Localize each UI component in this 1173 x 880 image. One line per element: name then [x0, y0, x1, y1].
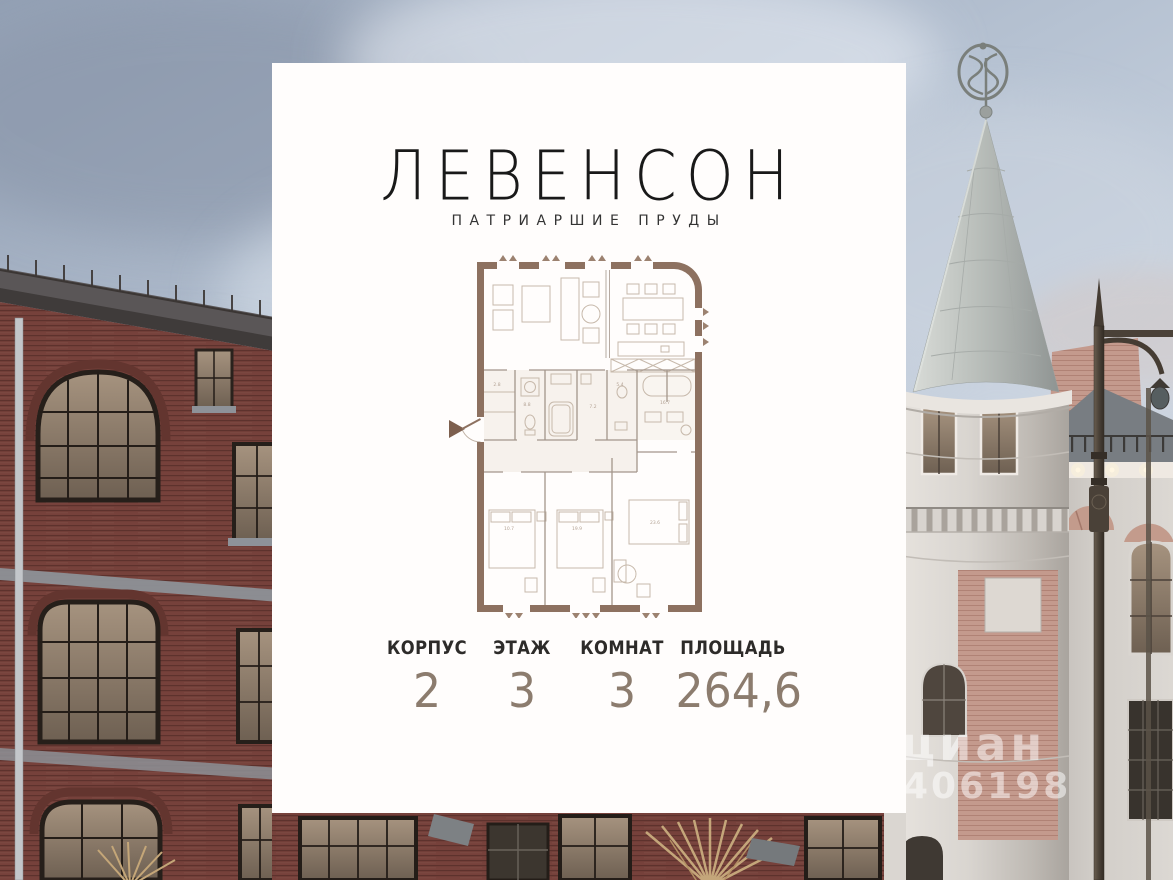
stat-rooms: КОМНАТ 3	[567, 637, 677, 715]
stat-area: ПЛОЩАДЬ 264,6	[672, 637, 790, 715]
svg-text:7.2: 7.2	[589, 404, 596, 410]
stats-row: КОРПУС 2 ЭТАЖ 3 КОМНАТ 3 ПЛОЩАДЬ 264,6	[272, 637, 906, 747]
arched-window	[32, 594, 164, 742]
stat-value: 3	[570, 668, 673, 715]
stat-label: ПЛОЩАДЬ	[680, 637, 781, 659]
watermark-number: 406198	[903, 769, 1071, 805]
svg-text:2.8: 2.8	[493, 382, 500, 388]
entry	[449, 419, 481, 438]
svg-text:23.6: 23.6	[650, 520, 660, 526]
brand-subtitle: ПАТРИАРШИЕ ПРУДЫ	[272, 213, 906, 229]
dentil-band	[901, 508, 1069, 532]
floor-plan: 23.6 19.9 10.7 8.8 7.2 5.4 2.8 16.7	[447, 254, 712, 618]
stat-floor: ЭТАЖ 3	[475, 637, 569, 715]
brick-building-left	[0, 255, 284, 880]
watermark-brand: циан	[901, 721, 1046, 767]
svg-text:5.4: 5.4	[616, 382, 623, 388]
arched-window	[30, 364, 166, 500]
stat-building: КОРПУС 2	[375, 637, 479, 715]
stat-label: КОМНАТ	[575, 637, 670, 659]
svg-text:19.9: 19.9	[572, 526, 582, 532]
downpipe	[15, 318, 23, 880]
stat-label: ЭТАЖ	[482, 637, 563, 659]
flyer-card: ЛЕВЕНСОН ПАТРИАРШИЕ ПРУДЫ	[272, 63, 906, 813]
lamp-globe	[1151, 387, 1169, 409]
stat-value: 3	[478, 668, 566, 715]
stat-label: КОРПУС	[382, 637, 471, 659]
stat-value: 264,6	[676, 668, 787, 715]
svg-text:10.7: 10.7	[504, 526, 514, 532]
svg-text:16.7: 16.7	[660, 400, 670, 406]
room-fills	[484, 370, 695, 472]
stat-value: 2	[378, 668, 476, 715]
brand-title: ЛЕВЕНСОН	[272, 137, 906, 217]
svg-text:8.8: 8.8	[523, 402, 530, 408]
flyer-photo: циан 406198 ЛЕВЕНСОН ПАТРИАРШИЕ ПРУДЫ	[0, 0, 1173, 880]
